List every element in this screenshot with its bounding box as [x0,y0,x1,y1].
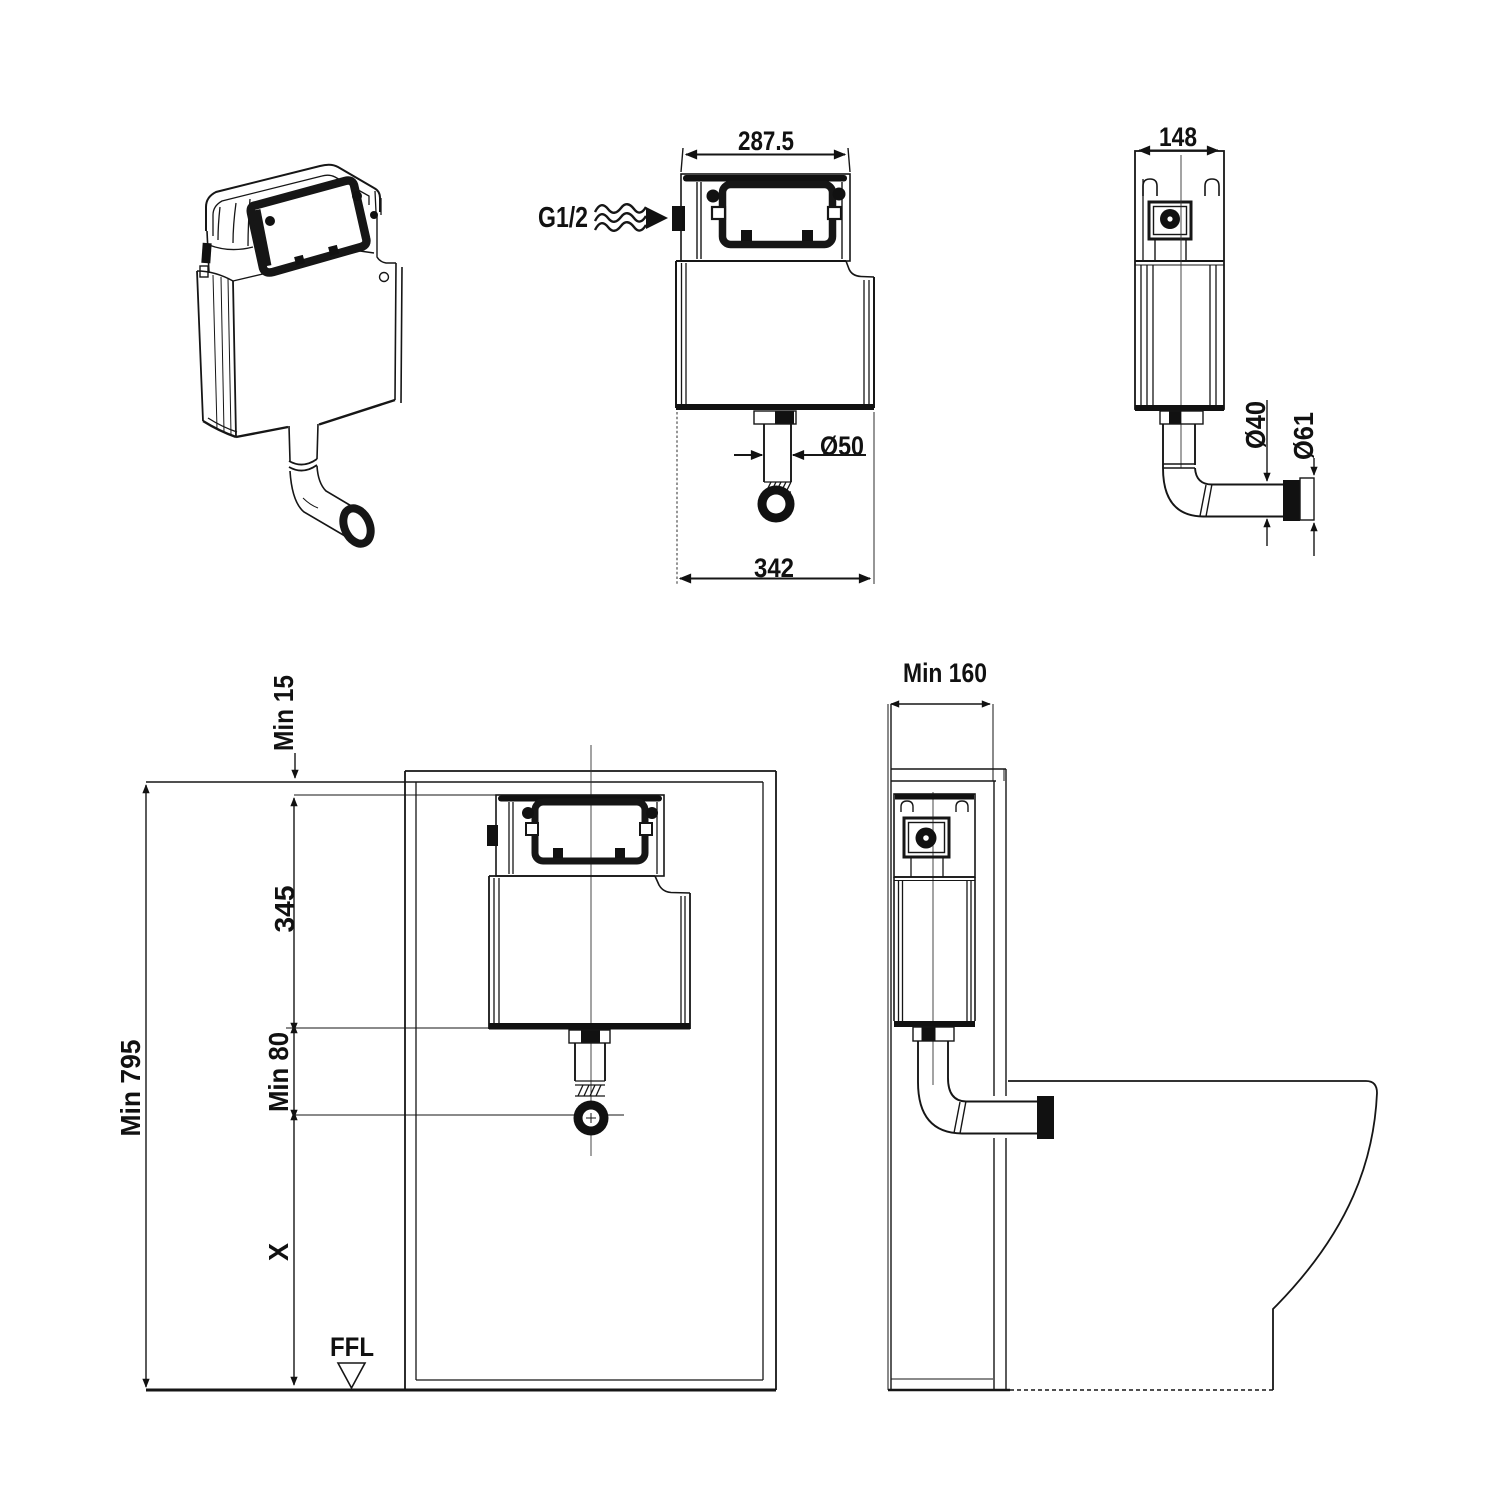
svg-text:Min 80: Min 80 [263,1032,294,1112]
svg-text:287.5: 287.5 [738,126,794,156]
svg-text:Ø61: Ø61 [1288,412,1319,460]
svg-text:345: 345 [269,886,300,933]
svg-text:Ø50: Ø50 [820,431,864,461]
svg-text:G1/2: G1/2 [538,202,588,234]
svg-text:X: X [263,1243,294,1261]
svg-text:148: 148 [1159,122,1197,152]
svg-text:FFL: FFL [330,1332,374,1362]
svg-text:Min 15: Min 15 [268,675,299,751]
svg-text:Min 795: Min 795 [115,1040,146,1137]
svg-text:Min 160: Min 160 [903,658,987,688]
